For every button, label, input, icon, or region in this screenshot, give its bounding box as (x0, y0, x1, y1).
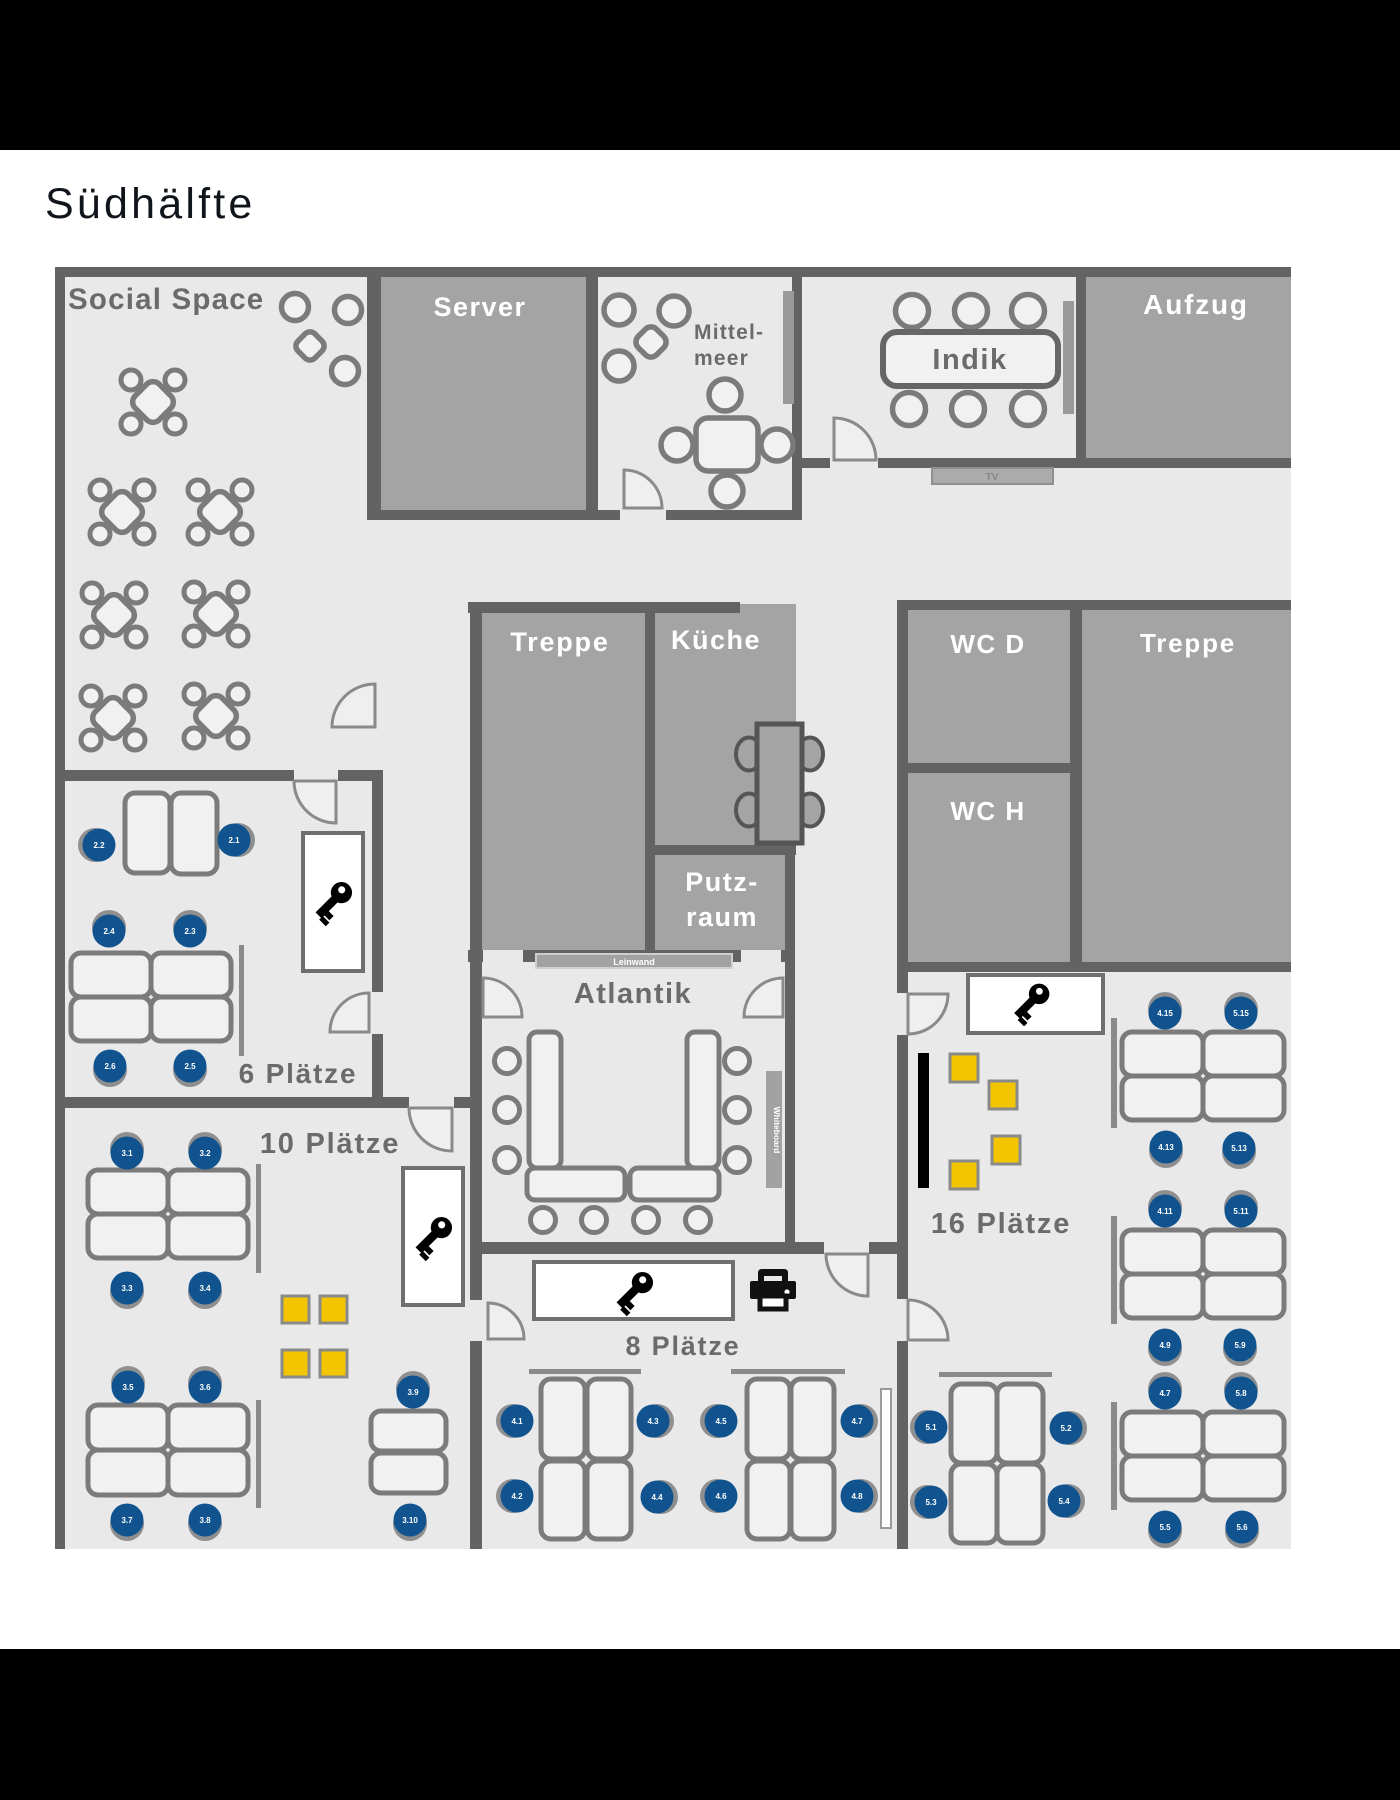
svg-text:4.6: 4.6 (715, 1492, 727, 1501)
svg-text:4.7: 4.7 (851, 1417, 863, 1426)
svg-text:4.11: 4.11 (1157, 1207, 1173, 1216)
svg-text:WC D: WC D (950, 629, 1025, 659)
svg-text:4.15: 4.15 (1157, 1009, 1173, 1018)
svg-text:5.2: 5.2 (1060, 1424, 1072, 1433)
svg-text:TV: TV (986, 472, 999, 483)
svg-text:4.13: 4.13 (1158, 1143, 1174, 1152)
svg-text:4.5: 4.5 (715, 1417, 727, 1426)
svg-text:3.5: 3.5 (122, 1383, 134, 1392)
svg-text:meer: meer (694, 347, 749, 370)
svg-text:3.8: 3.8 (199, 1516, 211, 1525)
svg-text:Küche: Küche (671, 625, 761, 655)
svg-text:4.9: 4.9 (1159, 1341, 1171, 1350)
svg-text:5.5: 5.5 (1159, 1523, 1171, 1532)
svg-text:2.3: 2.3 (184, 927, 196, 936)
svg-text:2.6: 2.6 (104, 1062, 116, 1071)
svg-text:Whiteboard: Whiteboard (772, 1107, 782, 1154)
svg-text:3.6: 3.6 (199, 1383, 211, 1392)
svg-text:16 Plätze: 16 Plätze (931, 1208, 1071, 1240)
svg-text:Server: Server (433, 292, 526, 322)
svg-text:Aufzug: Aufzug (1143, 289, 1249, 320)
svg-text:Indik: Indik (932, 344, 1007, 376)
svg-text:2.4: 2.4 (103, 927, 115, 936)
svg-text:10 Plätze: 10 Plätze (260, 1128, 400, 1160)
svg-text:3.2: 3.2 (199, 1149, 211, 1158)
svg-text:WC H: WC H (950, 796, 1025, 826)
svg-text:3.4: 3.4 (199, 1284, 211, 1293)
svg-text:5.13: 5.13 (1231, 1144, 1247, 1153)
svg-text:4.7: 4.7 (1159, 1389, 1171, 1398)
svg-text:Putz-: Putz- (685, 867, 758, 897)
svg-text:8 Plätze: 8 Plätze (626, 1331, 741, 1361)
svg-text:5.11: 5.11 (1233, 1207, 1249, 1216)
svg-text:5.1: 5.1 (925, 1423, 937, 1432)
svg-text:Treppe: Treppe (510, 627, 609, 657)
svg-text:3.9: 3.9 (407, 1388, 419, 1397)
svg-text:2.5: 2.5 (184, 1062, 196, 1071)
svg-text:Atlantik: Atlantik (574, 978, 692, 1010)
svg-text:4.8: 4.8 (851, 1492, 863, 1501)
svg-text:4.4: 4.4 (651, 1493, 663, 1502)
svg-text:Mittel-: Mittel- (694, 321, 764, 344)
svg-text:5.15: 5.15 (1233, 1009, 1249, 1018)
svg-text:6 Plätze: 6 Plätze (239, 1058, 358, 1089)
svg-text:5.3: 5.3 (925, 1498, 937, 1507)
svg-text:4.1: 4.1 (511, 1417, 523, 1426)
svg-text:5.9: 5.9 (1234, 1341, 1246, 1350)
svg-text:5.4: 5.4 (1058, 1497, 1070, 1506)
svg-text:3.1: 3.1 (121, 1149, 133, 1158)
svg-text:2.2: 2.2 (93, 841, 105, 850)
svg-text:Social Space: Social Space (68, 283, 264, 316)
svg-text:3.3: 3.3 (121, 1284, 133, 1293)
svg-text:3.10: 3.10 (402, 1516, 418, 1525)
svg-text:4.2: 4.2 (511, 1492, 523, 1501)
svg-text:Leinwand: Leinwand (613, 957, 655, 967)
svg-text:3.7: 3.7 (121, 1516, 133, 1525)
svg-text:5.8: 5.8 (1235, 1389, 1247, 1398)
svg-text:2.1: 2.1 (228, 836, 240, 845)
svg-text:Treppe: Treppe (1140, 628, 1236, 658)
svg-text:5.6: 5.6 (1236, 1523, 1248, 1532)
svg-text:raum: raum (686, 902, 758, 932)
svg-text:4.3: 4.3 (647, 1417, 659, 1426)
